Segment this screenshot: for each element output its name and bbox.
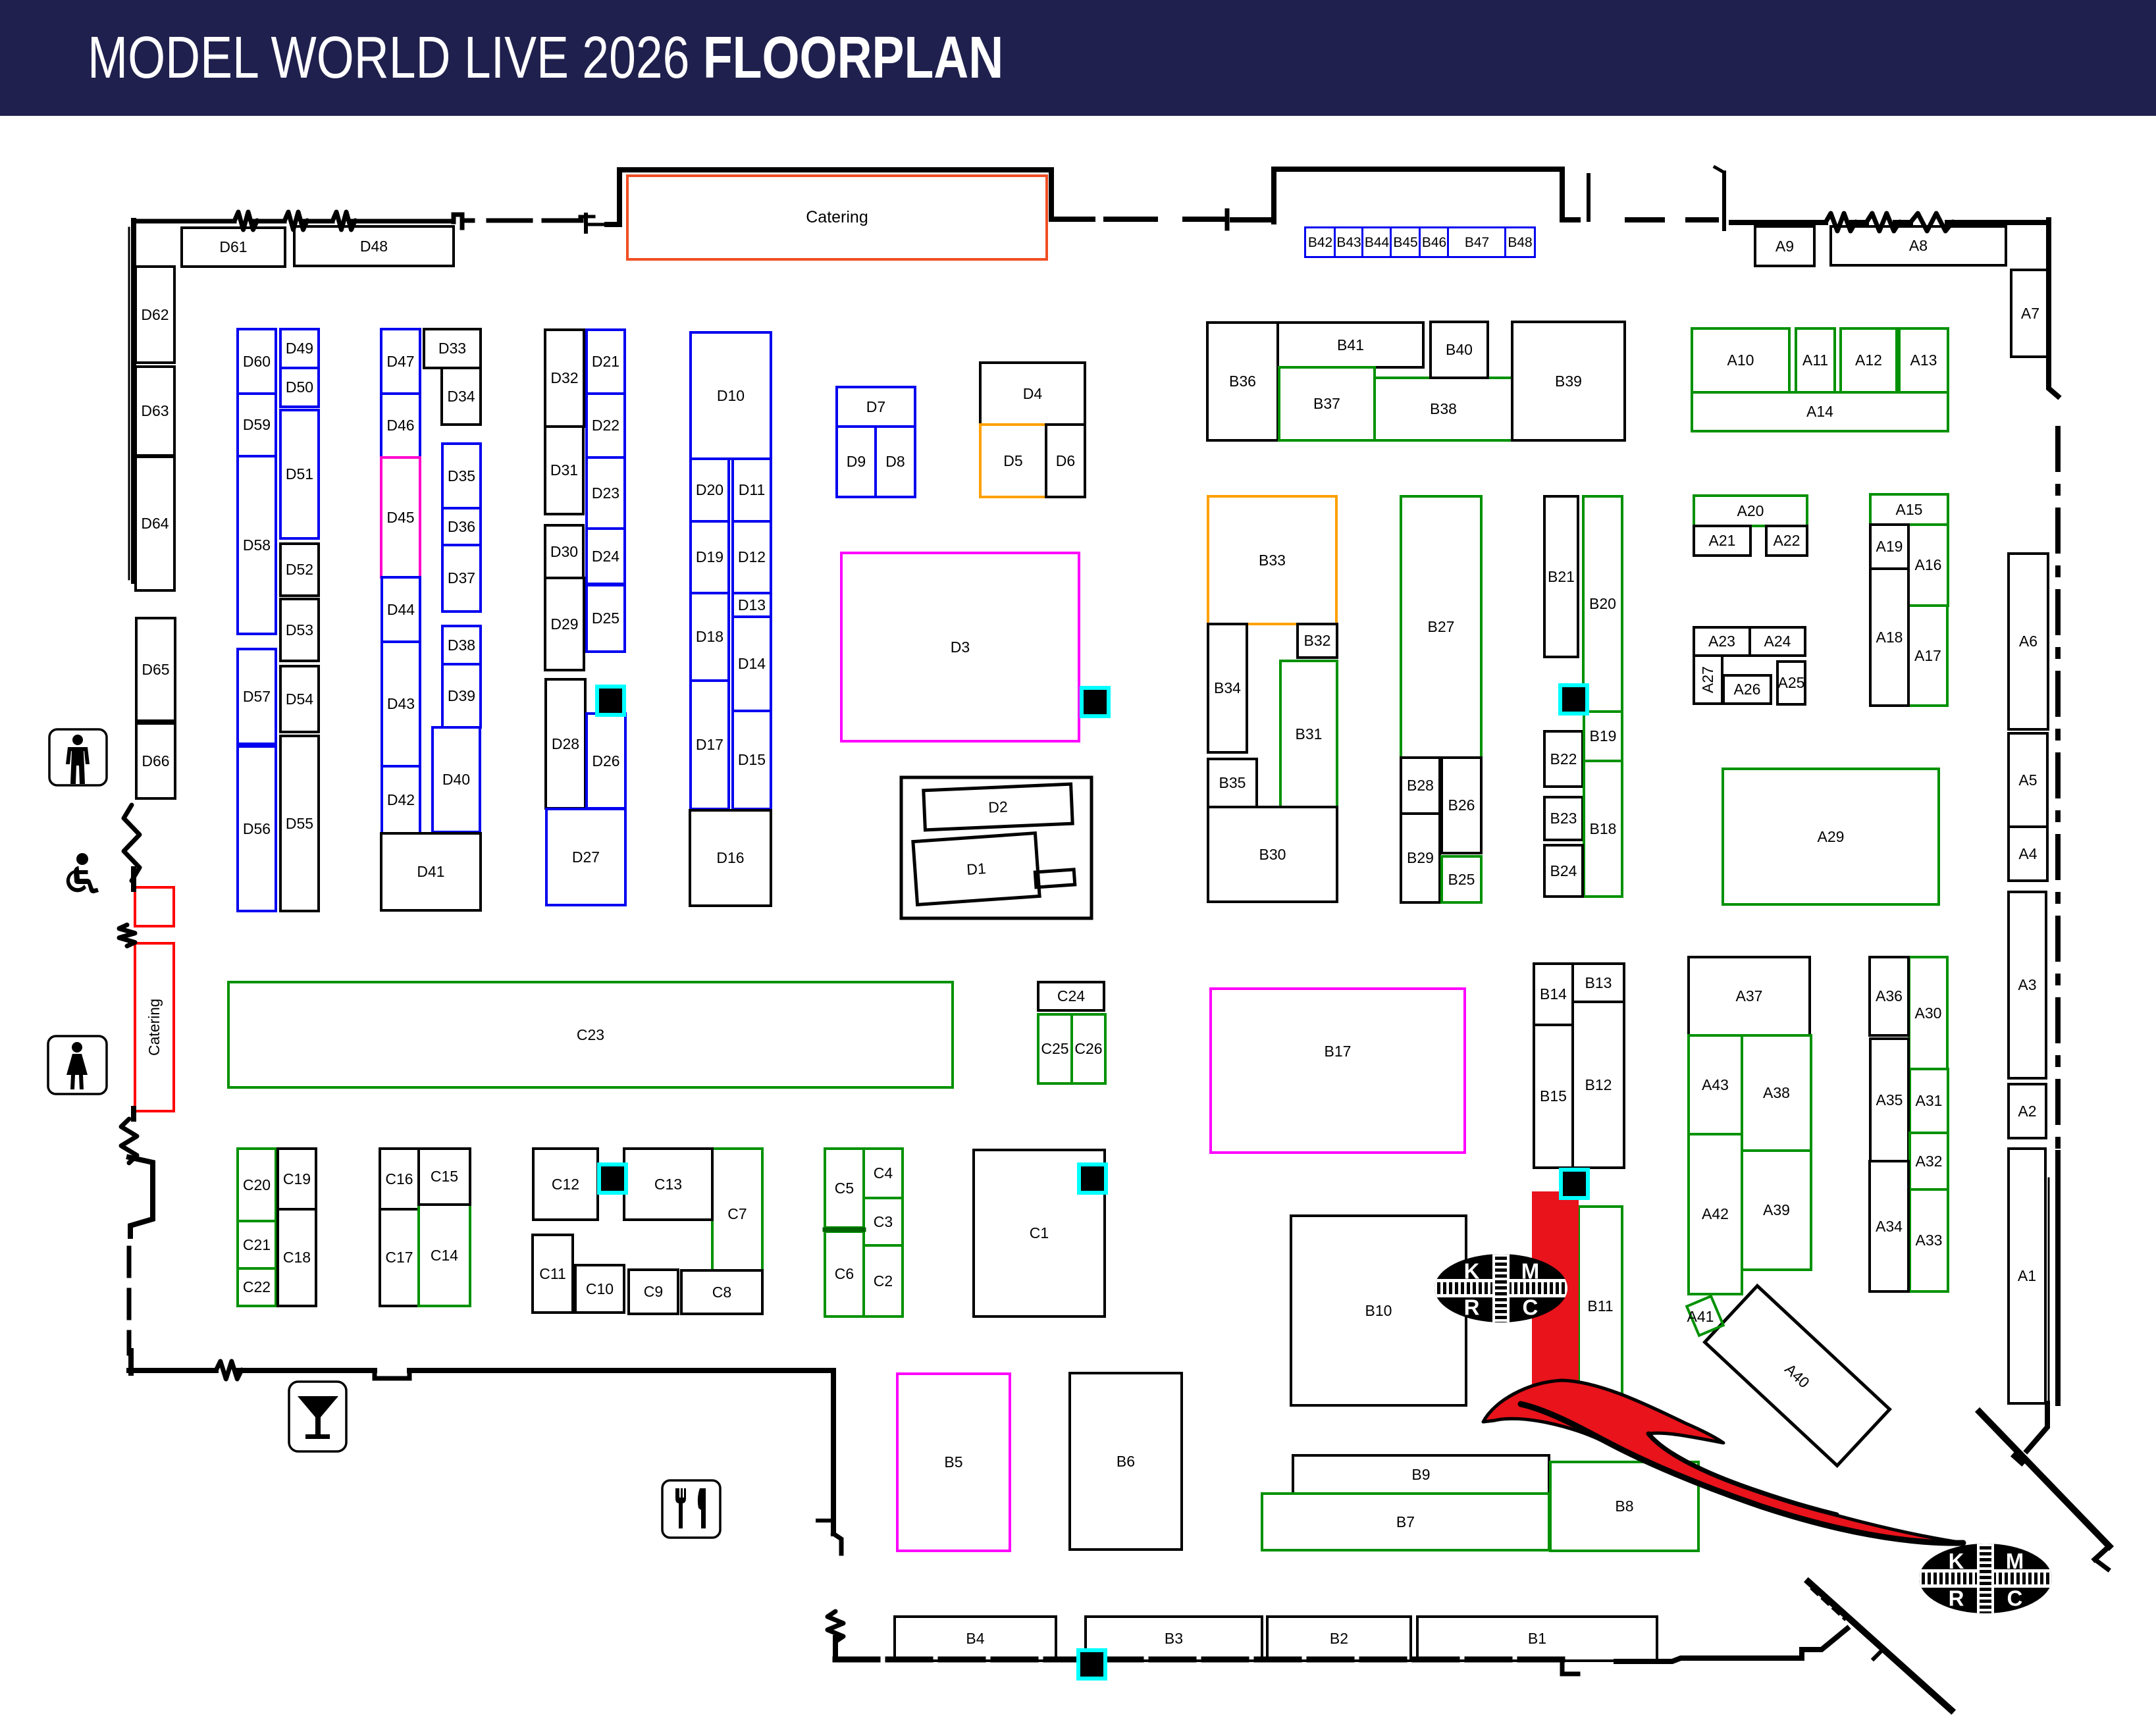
svg-text:A41: A41 xyxy=(1687,1308,1714,1325)
svg-text:K: K xyxy=(1949,1549,1964,1573)
svg-text:C: C xyxy=(2007,1586,2023,1610)
svg-text:M: M xyxy=(2006,1549,2024,1573)
svg-text:R: R xyxy=(1949,1586,1964,1610)
svg-text:D2: D2 xyxy=(988,798,1009,816)
svg-text:D1: D1 xyxy=(966,860,986,878)
svg-text:A40: A40 xyxy=(1781,1361,1813,1392)
